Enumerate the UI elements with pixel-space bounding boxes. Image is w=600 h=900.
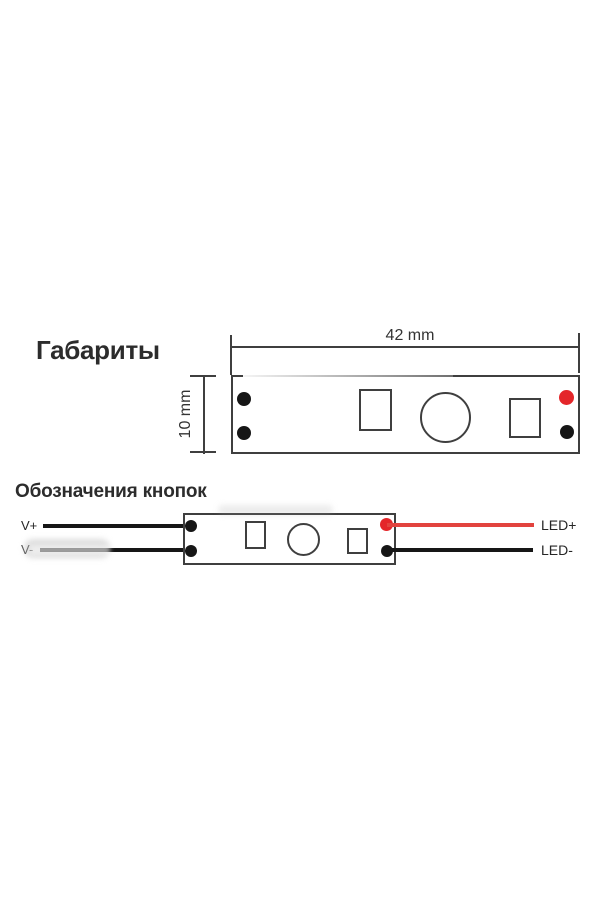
watermark-smudge <box>243 372 453 379</box>
wire-label-led-minus: LED- <box>541 543 573 558</box>
button-component <box>347 528 368 554</box>
solder-pad-black <box>237 392 251 406</box>
solder-pad-red <box>559 390 574 405</box>
height-dimension-tick-top <box>190 375 216 377</box>
button-component <box>245 521 266 549</box>
button-component <box>509 398 541 438</box>
width-dimension-tick-right <box>578 333 580 373</box>
wire-led-minus <box>387 548 533 552</box>
wire-v-plus <box>43 524 191 528</box>
solder-pad-black <box>185 545 197 557</box>
wire-label-v-plus: V+ <box>21 519 37 533</box>
button-component <box>359 389 392 431</box>
dimensions-section-title: Габариты <box>36 335 160 366</box>
height-dimension-line <box>203 376 205 454</box>
height-dimension-tick-bottom <box>190 451 216 453</box>
width-dimension-line <box>231 346 580 348</box>
wire-led-plus <box>387 523 534 527</box>
wiring-section-title: Обозначения кнопок <box>15 481 207 503</box>
solder-pad-black <box>560 425 574 439</box>
width-dimension-tick-left <box>230 335 232 375</box>
solder-pad-black <box>185 520 197 532</box>
wire-label-led-plus: LED+ <box>541 518 576 533</box>
width-dimension-label: 42 mm <box>355 327 465 345</box>
touch-sensor-circle <box>420 392 471 443</box>
led-dimmer-diagram: Габариты 42 mm 10 mm Обозначения кнопок … <box>0 0 600 900</box>
solder-pad-black <box>237 426 251 440</box>
touch-sensor-circle <box>287 523 320 556</box>
height-dimension-label: 10 mm <box>177 390 195 439</box>
watermark-smudge <box>218 505 333 515</box>
watermark-smudge <box>30 545 110 555</box>
